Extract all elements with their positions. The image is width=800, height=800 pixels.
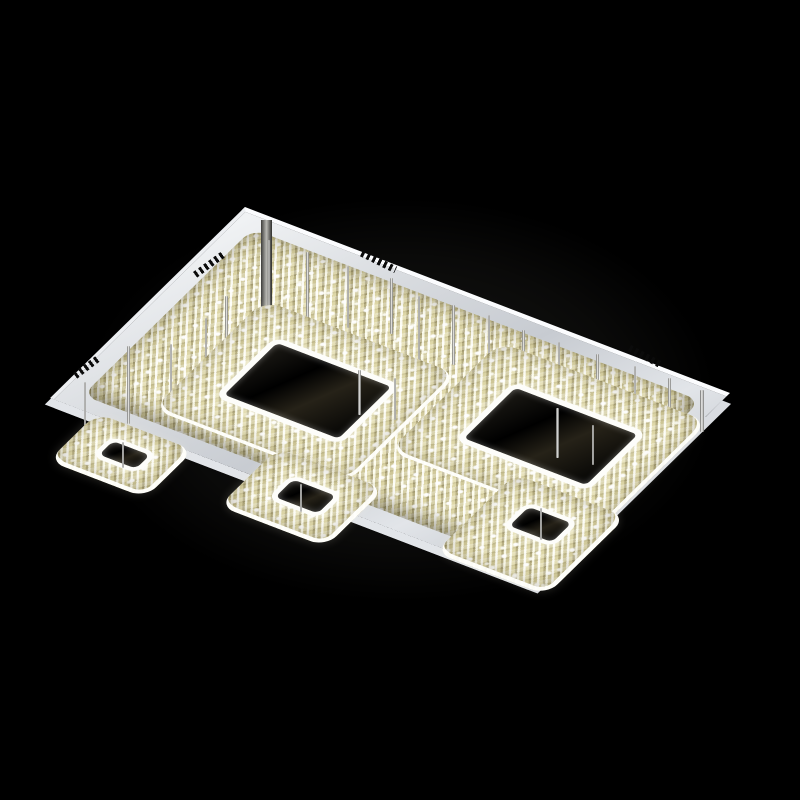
support-rod xyxy=(300,484,302,512)
support-rod xyxy=(390,278,393,334)
support-rod xyxy=(394,378,396,420)
support-rod xyxy=(358,370,361,415)
support-rod xyxy=(540,508,542,540)
support-rod xyxy=(347,266,349,328)
support-rod xyxy=(122,442,124,468)
support-rod xyxy=(127,346,130,424)
support-rod xyxy=(306,252,309,326)
product-photo xyxy=(0,0,800,800)
support-rod xyxy=(170,344,172,396)
support-rod xyxy=(452,305,455,365)
support-rod xyxy=(592,425,594,465)
support-rod xyxy=(556,408,559,458)
